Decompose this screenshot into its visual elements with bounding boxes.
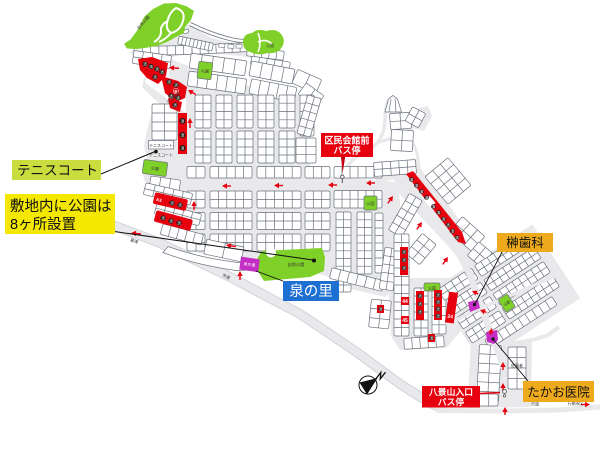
svg-text:済: 済 [379, 306, 383, 311]
svg-text:済: 済 [181, 132, 185, 137]
svg-text:済: 済 [418, 309, 422, 314]
svg-text:済: 済 [430, 335, 434, 340]
svg-text:済: 済 [415, 183, 419, 188]
svg-text:済: 済 [425, 195, 429, 200]
svg-text:区民会館前: 区民会館前 [324, 135, 369, 146]
svg-text:公園: 公園 [367, 200, 375, 206]
svg-text:済: 済 [173, 102, 177, 107]
svg-text:済: 済 [169, 218, 173, 223]
svg-text:泉の里: 泉の里 [289, 283, 333, 300]
svg-text:済: 済 [420, 189, 424, 194]
svg-text:テニスコート: テニスコート [17, 163, 98, 178]
svg-text:済: 済 [436, 306, 440, 311]
svg-text:済: 済 [436, 292, 440, 297]
svg-text:45: 45 [402, 318, 408, 324]
svg-text:済: 済 [418, 293, 422, 298]
svg-text:済: 済 [178, 202, 182, 207]
svg-text:バス停: バス停 [333, 145, 360, 156]
svg-text:済: 済 [160, 69, 164, 74]
svg-text:済: 済 [436, 313, 440, 318]
svg-text:済: 済 [402, 249, 406, 254]
svg-text:24: 24 [447, 314, 454, 321]
svg-text:済: 済 [451, 228, 455, 233]
svg-text:八景山入口: 八景山入口 [428, 386, 473, 397]
svg-text:8ヶ所設置: 8ヶ所設置 [10, 216, 76, 233]
svg-text:済: 済 [437, 210, 441, 215]
svg-text:済: 済 [418, 301, 422, 306]
svg-text:テニスコート: テニスコート [149, 142, 173, 148]
svg-text:済: 済 [174, 82, 178, 87]
svg-text:44: 44 [402, 299, 408, 305]
svg-text:済: 済 [181, 118, 185, 123]
svg-text:済: 済 [153, 74, 157, 79]
svg-text:済: 済 [402, 265, 406, 270]
svg-text:公園: 公園 [151, 164, 160, 171]
svg-text:自然公園: 自然公園 [288, 261, 305, 268]
svg-text:済: 済 [455, 235, 459, 240]
svg-text:済: 済 [402, 257, 406, 262]
svg-text:済: 済 [149, 64, 153, 69]
svg-text:済: 済 [167, 79, 171, 84]
svg-text:公園: 公園 [428, 285, 436, 291]
svg-text:済: 済 [432, 204, 436, 209]
svg-text:済: 済 [161, 215, 165, 220]
svg-text:済: 済 [181, 145, 185, 150]
svg-text:敷地内に公園は: 敷地内に公園は [10, 198, 112, 215]
svg-text:バス停: バス停 [438, 396, 465, 407]
svg-text:公園: 公園 [266, 42, 274, 48]
svg-text:公園: 公園 [201, 67, 210, 74]
svg-text:済: 済 [410, 177, 414, 182]
svg-text:済: 済 [436, 299, 440, 304]
svg-text:済: 済 [446, 222, 450, 227]
svg-text:榊歯科: 榊歯科 [506, 236, 544, 250]
svg-text:済: 済 [155, 66, 159, 71]
svg-text:済: 済 [442, 216, 446, 221]
svg-text:たかお医院: たかお医院 [527, 386, 590, 400]
svg-text:済: 済 [170, 200, 174, 205]
svg-text:済: 済 [143, 61, 147, 66]
svg-text:済: 済 [177, 220, 181, 225]
